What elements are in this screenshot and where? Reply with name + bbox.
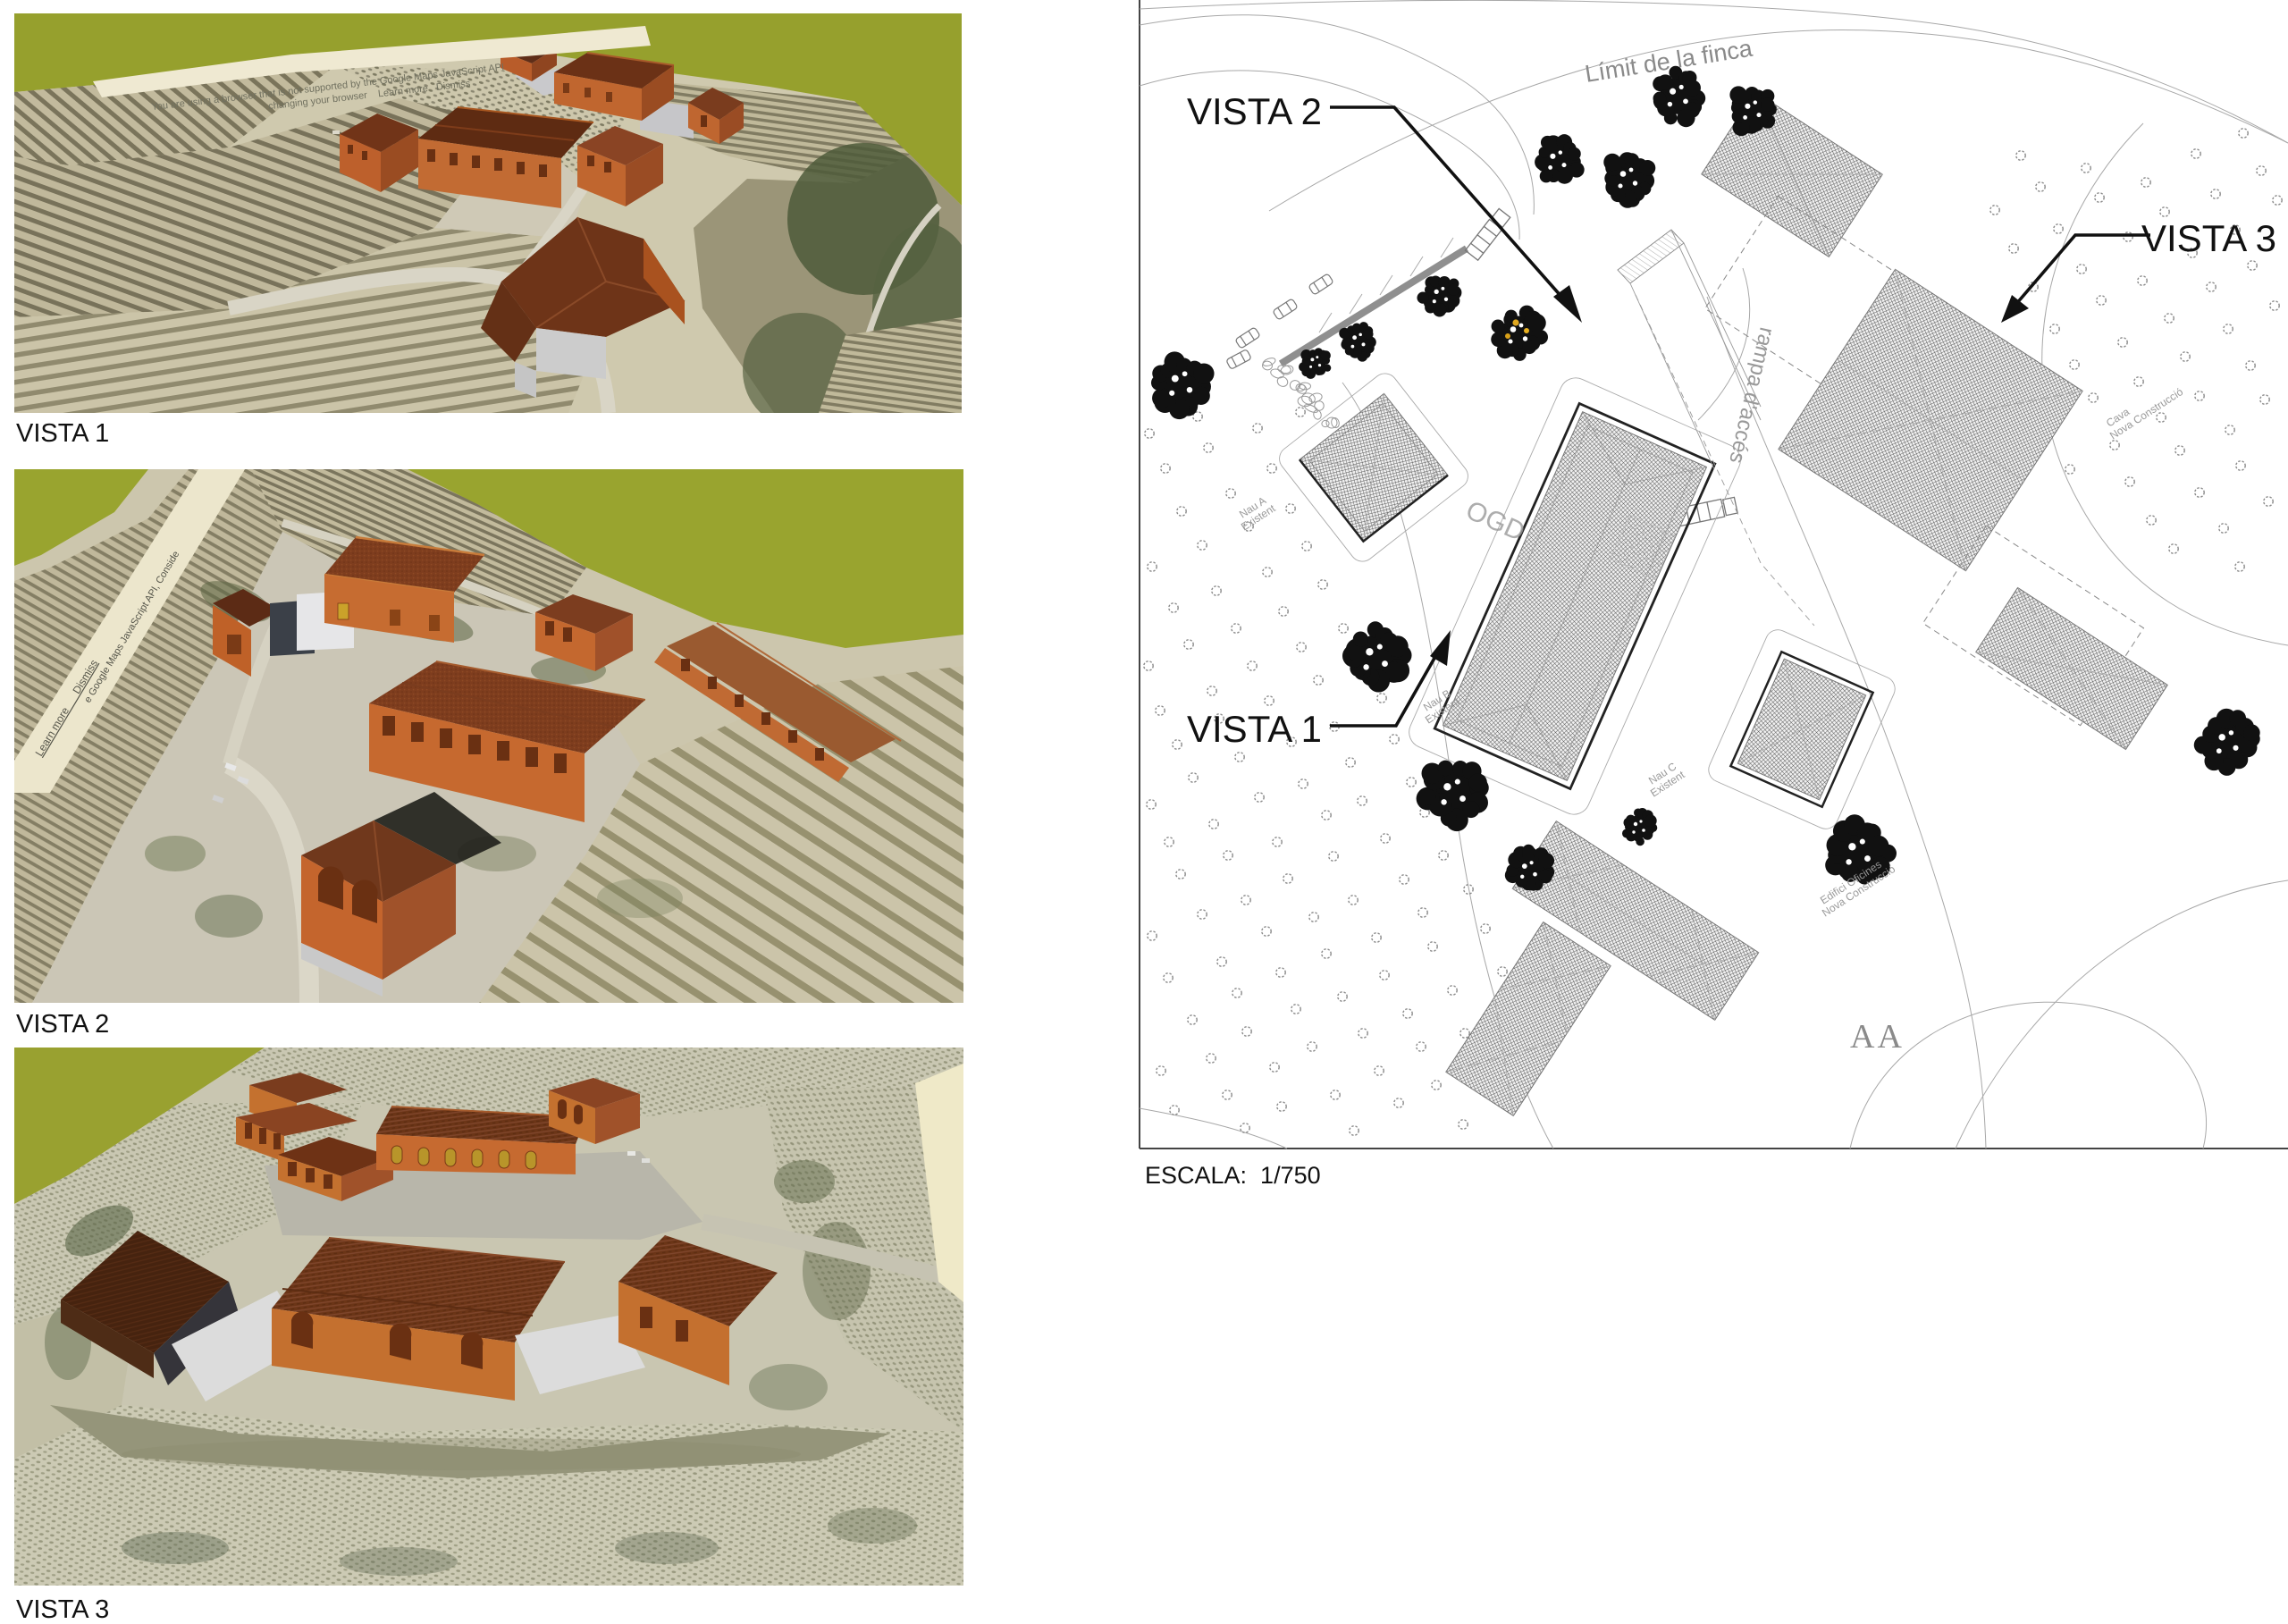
svg-text:AA: AA: [1850, 1018, 1905, 1056]
svg-text:VISTA 3: VISTA 3: [2141, 217, 2276, 259]
svg-text:VISTA 2: VISTA 2: [1187, 90, 1322, 132]
svg-text:VISTA 1: VISTA 1: [1187, 708, 1322, 750]
